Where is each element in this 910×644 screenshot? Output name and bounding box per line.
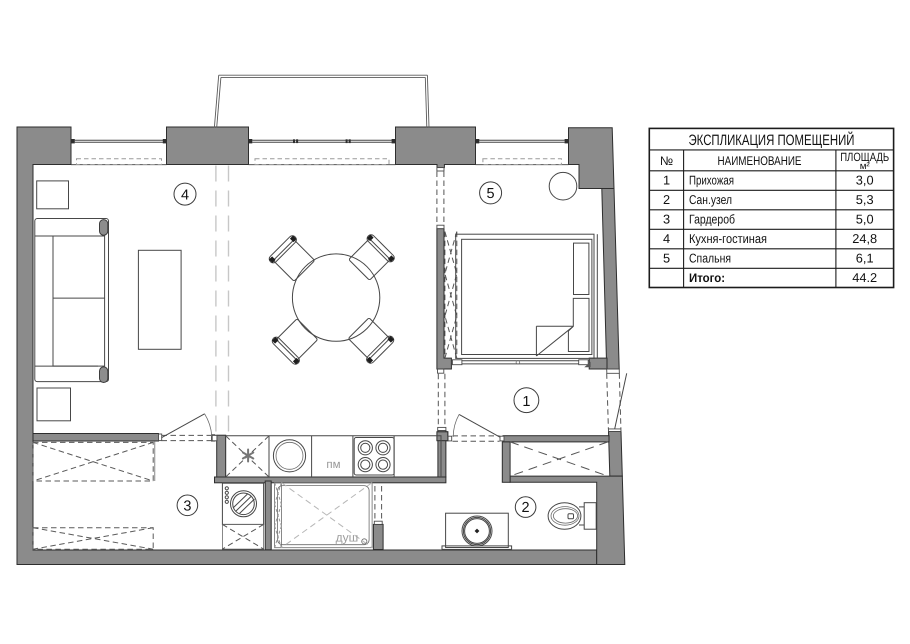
svg-text:5: 5 bbox=[663, 251, 670, 266]
svg-text:3: 3 bbox=[183, 498, 191, 514]
svg-text:Прихожая: Прихожая bbox=[689, 173, 734, 188]
svg-text:3,0: 3,0 bbox=[856, 173, 874, 188]
svg-text:Кухня-гостиная: Кухня-гостиная bbox=[689, 231, 767, 246]
svg-text:душ: душ bbox=[336, 531, 359, 545]
svg-text:2: 2 bbox=[663, 192, 670, 207]
svg-text:5: 5 bbox=[487, 186, 495, 202]
svg-text:3: 3 bbox=[663, 212, 670, 227]
svg-text:24,8: 24,8 bbox=[852, 231, 877, 246]
svg-text:м²: м² bbox=[860, 161, 871, 172]
svg-text:44.2: 44.2 bbox=[852, 270, 877, 285]
svg-text:4: 4 bbox=[181, 187, 189, 203]
svg-text:Итого:: Итого: bbox=[689, 271, 725, 285]
svg-text:Гардероб: Гардероб bbox=[689, 212, 735, 227]
svg-text:4: 4 bbox=[663, 231, 670, 246]
svg-text:6,1: 6,1 bbox=[856, 251, 874, 266]
svg-text:2: 2 bbox=[522, 500, 530, 516]
svg-text:пм: пм bbox=[326, 459, 340, 471]
svg-text:1: 1 bbox=[663, 173, 670, 188]
svg-text:5,3: 5,3 bbox=[856, 192, 874, 207]
svg-text:ЭКСПЛИКАЦИЯ ПОМЕЩЕНИЙ: ЭКСПЛИКАЦИЯ ПОМЕЩЕНИЙ bbox=[689, 131, 855, 149]
svg-text:Спальня: Спальня bbox=[689, 251, 731, 266]
svg-text:1: 1 bbox=[522, 394, 530, 410]
svg-text:№: № bbox=[660, 154, 673, 168]
svg-text:Сан.узел: Сан.узел bbox=[689, 192, 732, 207]
svg-text:НАИМЕНОВАНИЕ: НАИМЕНОВАНИЕ bbox=[718, 154, 802, 168]
svg-text:5,0: 5,0 bbox=[856, 212, 874, 227]
